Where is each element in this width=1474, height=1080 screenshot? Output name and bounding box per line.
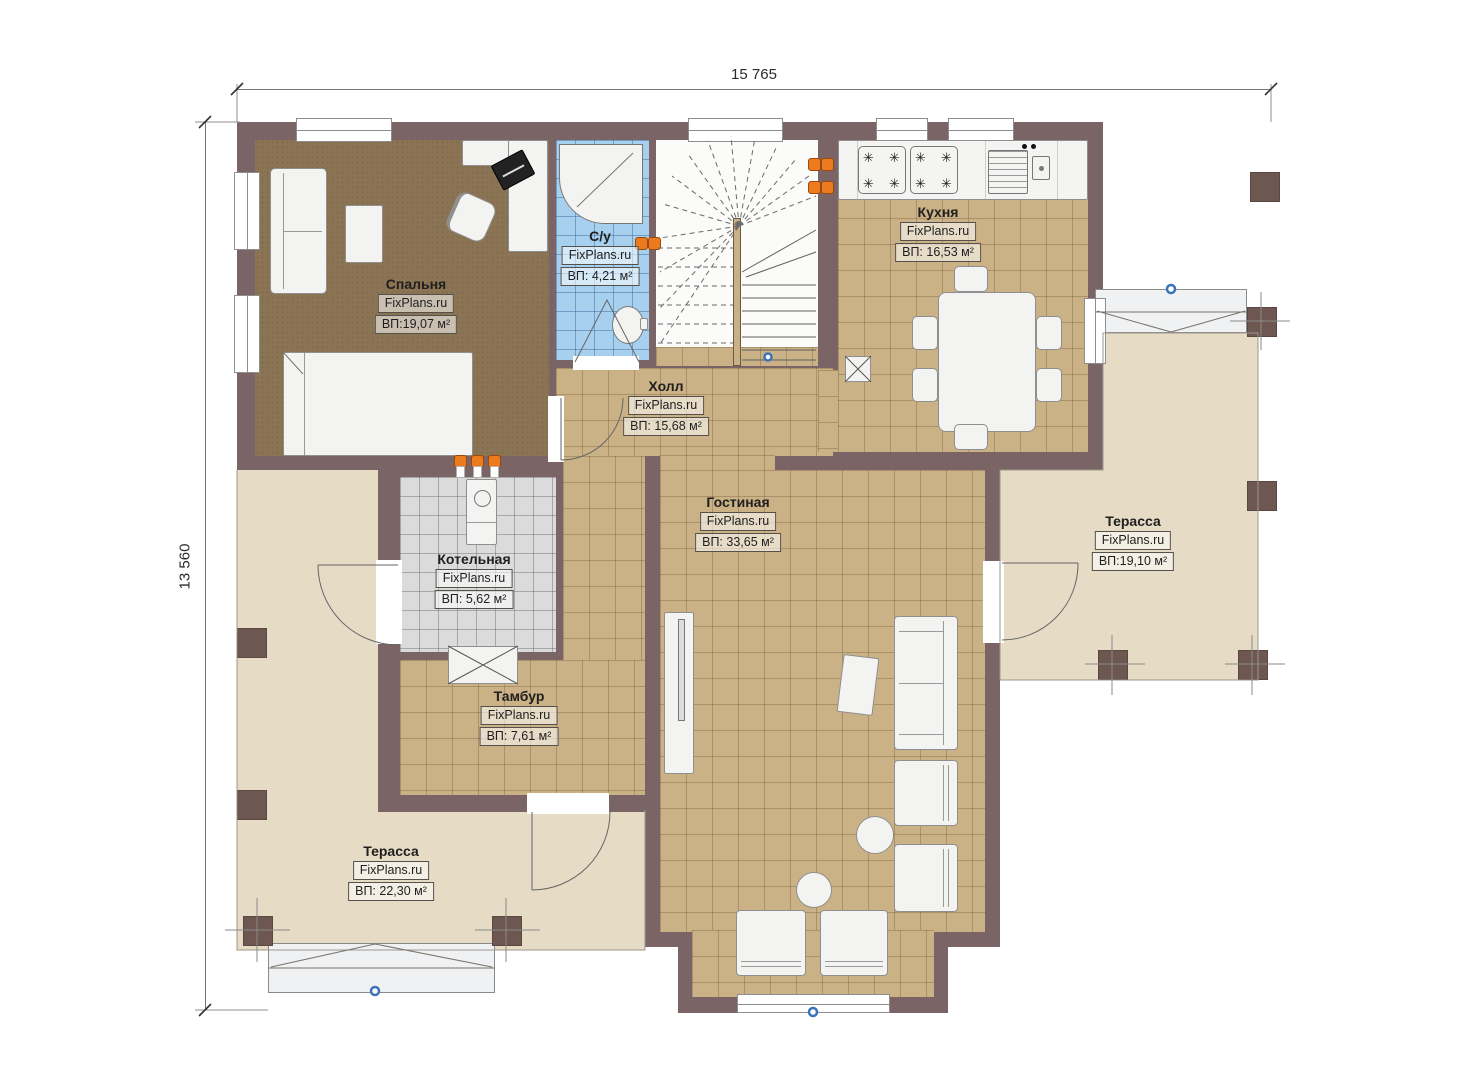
watermark: FixPlans.ru (1095, 531, 1172, 550)
burner-icon: ✳ (915, 177, 926, 190)
dining-chair (912, 368, 938, 402)
kitchen-window-top-1 (876, 118, 928, 142)
burner-icon: ✳ (915, 151, 926, 164)
boiler-door-opening (376, 560, 402, 644)
room-area: ВП: 22,30 м² (348, 882, 434, 901)
terrace-post (1247, 481, 1277, 511)
boiler-vent-pipe (456, 466, 465, 478)
room-name: Холл (648, 378, 683, 394)
sink-drainer (988, 150, 1028, 194)
room-area: ВП:19,07 м² (375, 315, 457, 334)
room-label-boiler: Котельная FixPlans.ru ВП: 5,62 м² (435, 551, 514, 609)
terrace-post (1250, 172, 1280, 202)
bedroom-window-left-1 (234, 172, 260, 250)
bedroom-sofa (270, 168, 327, 294)
living-rug (837, 654, 880, 716)
burner-icon: ✳ (941, 177, 952, 190)
armchair (894, 760, 958, 826)
radiator-icon (821, 158, 834, 171)
sink-bowl (1032, 156, 1050, 180)
room-name: Кухня (918, 204, 959, 220)
armchair (736, 910, 806, 976)
watermark: FixPlans.ru (353, 861, 430, 880)
terrace-post (237, 790, 267, 820)
kitchen-window-top-2 (948, 118, 1014, 142)
room-name: Гостиная (706, 494, 769, 510)
radiator-icon (821, 181, 834, 194)
bed (283, 352, 473, 456)
bedroom-window-top (296, 118, 392, 142)
watermark: FixPlans.ru (378, 294, 455, 313)
faucet-dot (1031, 144, 1036, 149)
dimension-line-left (205, 122, 206, 1010)
armchair (894, 844, 958, 912)
burner-icon: ✳ (889, 177, 900, 190)
vestibule-door-opening (527, 793, 609, 814)
tv-stand (664, 612, 694, 774)
terrace-post (1098, 650, 1128, 680)
terrace-left-steps (268, 943, 495, 993)
bedroom-window-left-2 (234, 295, 260, 373)
burner-icon: ✳ (863, 151, 874, 164)
terrace-right-floor (1103, 333, 1258, 680)
large-sofa (894, 616, 958, 750)
room-label-bathroom: С/у FixPlans.ru ВП: 4,21 м² (561, 228, 640, 286)
dining-chair (1036, 368, 1062, 402)
dimension-line-top (237, 89, 1271, 90)
room-label-bedroom: Спальня FixPlans.ru ВП:19,07 м² (375, 276, 457, 334)
dining-chair (954, 424, 988, 450)
boiler-vent-pipe (490, 466, 499, 478)
room-name: С/у (589, 228, 611, 244)
vestibule-shaft-box (448, 646, 518, 684)
dining-table (938, 292, 1036, 432)
room-area: ВП: 16,53 м² (895, 243, 981, 262)
terrace-right-floor-inner (1000, 470, 1103, 680)
room-area: ВП:19,10 м² (1092, 552, 1174, 571)
room-name: Терасса (363, 843, 419, 859)
room-area: ВП: 33,65 м² (695, 533, 781, 552)
room-area: ВП: 15,68 м² (623, 417, 709, 436)
terrace-right-steps (1095, 289, 1247, 333)
terrace-post (1238, 650, 1268, 680)
kitchen-hall-opening (818, 370, 838, 452)
room-label-vestibule: Тамбур FixPlans.ru ВП: 7,61 м² (480, 688, 559, 746)
room-label-kitchen: Кухня FixPlans.ru ВП: 16,53 м² (895, 204, 981, 262)
watermark: FixPlans.ru (628, 396, 705, 415)
room-area: ВП: 5,62 м² (435, 590, 514, 609)
boiler-vent-pipe (473, 466, 482, 478)
dimension-height-label: 13 560 (176, 544, 193, 590)
coffee-table (856, 816, 894, 854)
radiator-icon (808, 181, 821, 194)
corridor-floor (563, 456, 645, 660)
staircase-window-top (688, 118, 783, 142)
boiler-unit (466, 479, 497, 545)
room-name: Спальня (386, 276, 446, 292)
room-area: ВП: 4,21 м² (561, 267, 640, 286)
kitchen-terrace-door (1084, 298, 1106, 364)
room-label-hall: Холл FixPlans.ru ВП: 15,68 м² (623, 378, 709, 436)
terrace-post (237, 628, 267, 658)
watermark: FixPlans.ru (700, 512, 777, 531)
kitchen-shaft-box (845, 356, 871, 382)
room-name: Терасса (1105, 513, 1161, 529)
burner-icon: ✳ (889, 151, 900, 164)
bay-window-floor (692, 930, 934, 997)
living-terrace-door-opening (983, 561, 1004, 643)
dining-chair (1036, 316, 1062, 350)
watermark: FixPlans.ru (436, 569, 513, 588)
burner-icon: ✳ (863, 177, 874, 190)
room-name: Тамбур (494, 688, 545, 704)
room-area: ВП: 7,61 м² (480, 727, 559, 746)
room-label-terrace-left: Терасса FixPlans.ru ВП: 22,30 м² (348, 843, 434, 901)
terrace-post (492, 916, 522, 946)
armchair (820, 910, 888, 976)
room-label-terrace-right: Терасса FixPlans.ru ВП:19,10 м² (1092, 513, 1174, 571)
bay-window (737, 994, 890, 1013)
radiator-icon (648, 237, 661, 250)
room-label-living: Гостиная FixPlans.ru ВП: 33,65 м² (695, 494, 781, 552)
radiator-icon (808, 158, 821, 171)
room-name: Котельная (437, 551, 510, 567)
dimension-width-label: 15 765 (731, 66, 777, 83)
coffee-table (796, 872, 832, 908)
washbasin-tap (640, 318, 648, 330)
bathroom-door-opening (573, 356, 639, 370)
terrace-post (243, 916, 273, 946)
dining-chair (912, 316, 938, 350)
faucet-dot (1022, 144, 1027, 149)
stair-divider (733, 218, 741, 366)
bedroom-rug (345, 205, 383, 263)
dining-chair (954, 266, 988, 292)
floor-plan-canvas: 15 765 13 560 (0, 0, 1474, 1080)
burner-icon: ✳ (941, 151, 952, 164)
watermark: FixPlans.ru (900, 222, 977, 241)
terrace-post (1247, 307, 1277, 337)
watermark: FixPlans.ru (481, 706, 558, 725)
watermark: FixPlans.ru (562, 246, 639, 265)
bedroom-door-opening (548, 396, 564, 462)
